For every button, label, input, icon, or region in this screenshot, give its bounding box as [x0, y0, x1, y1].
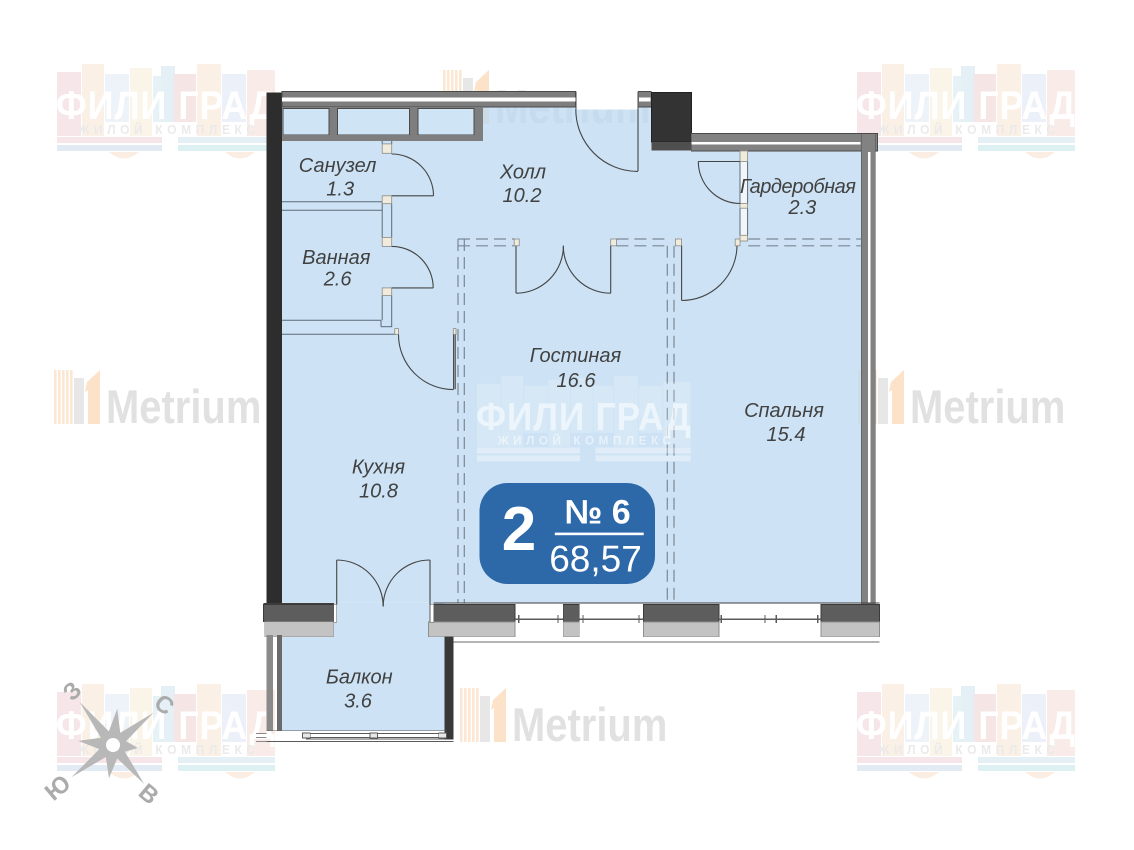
svg-text:10.8: 10.8 [359, 481, 398, 503]
svg-text:ФИЛИ ГРАД: ФИЛИ ГРАД [476, 394, 692, 438]
svg-text:Гардеробная: Гардеробная [740, 176, 856, 198]
svg-text:ЖИЛОЙ КОМПЛЕКС: ЖИЛОЙ КОМПЛЕКС [497, 432, 676, 447]
svg-text:Холл: Холл [499, 162, 546, 184]
svg-text:16.6: 16.6 [557, 370, 597, 392]
svg-text:№ 6: № 6 [564, 494, 630, 532]
svg-text:Спальня: Спальня [744, 400, 824, 422]
svg-text:Ванная: Ванная [302, 247, 371, 269]
svg-text:2.3: 2.3 [787, 197, 816, 219]
svg-text:Санузел: Санузел [299, 155, 377, 177]
svg-text:1.3: 1.3 [326, 178, 354, 200]
svg-text:68,57: 68,57 [549, 538, 642, 579]
svg-text:15.4: 15.4 [767, 424, 806, 446]
svg-text:10.2: 10.2 [503, 185, 542, 207]
svg-text:3.6: 3.6 [344, 691, 373, 713]
svg-text:2: 2 [502, 495, 536, 564]
svg-text:Балкон: Балкон [326, 667, 393, 689]
svg-text:Кухня: Кухня [352, 457, 406, 479]
svg-text:Гостиная: Гостиная [530, 345, 622, 367]
svg-text:2.6: 2.6 [323, 269, 353, 291]
